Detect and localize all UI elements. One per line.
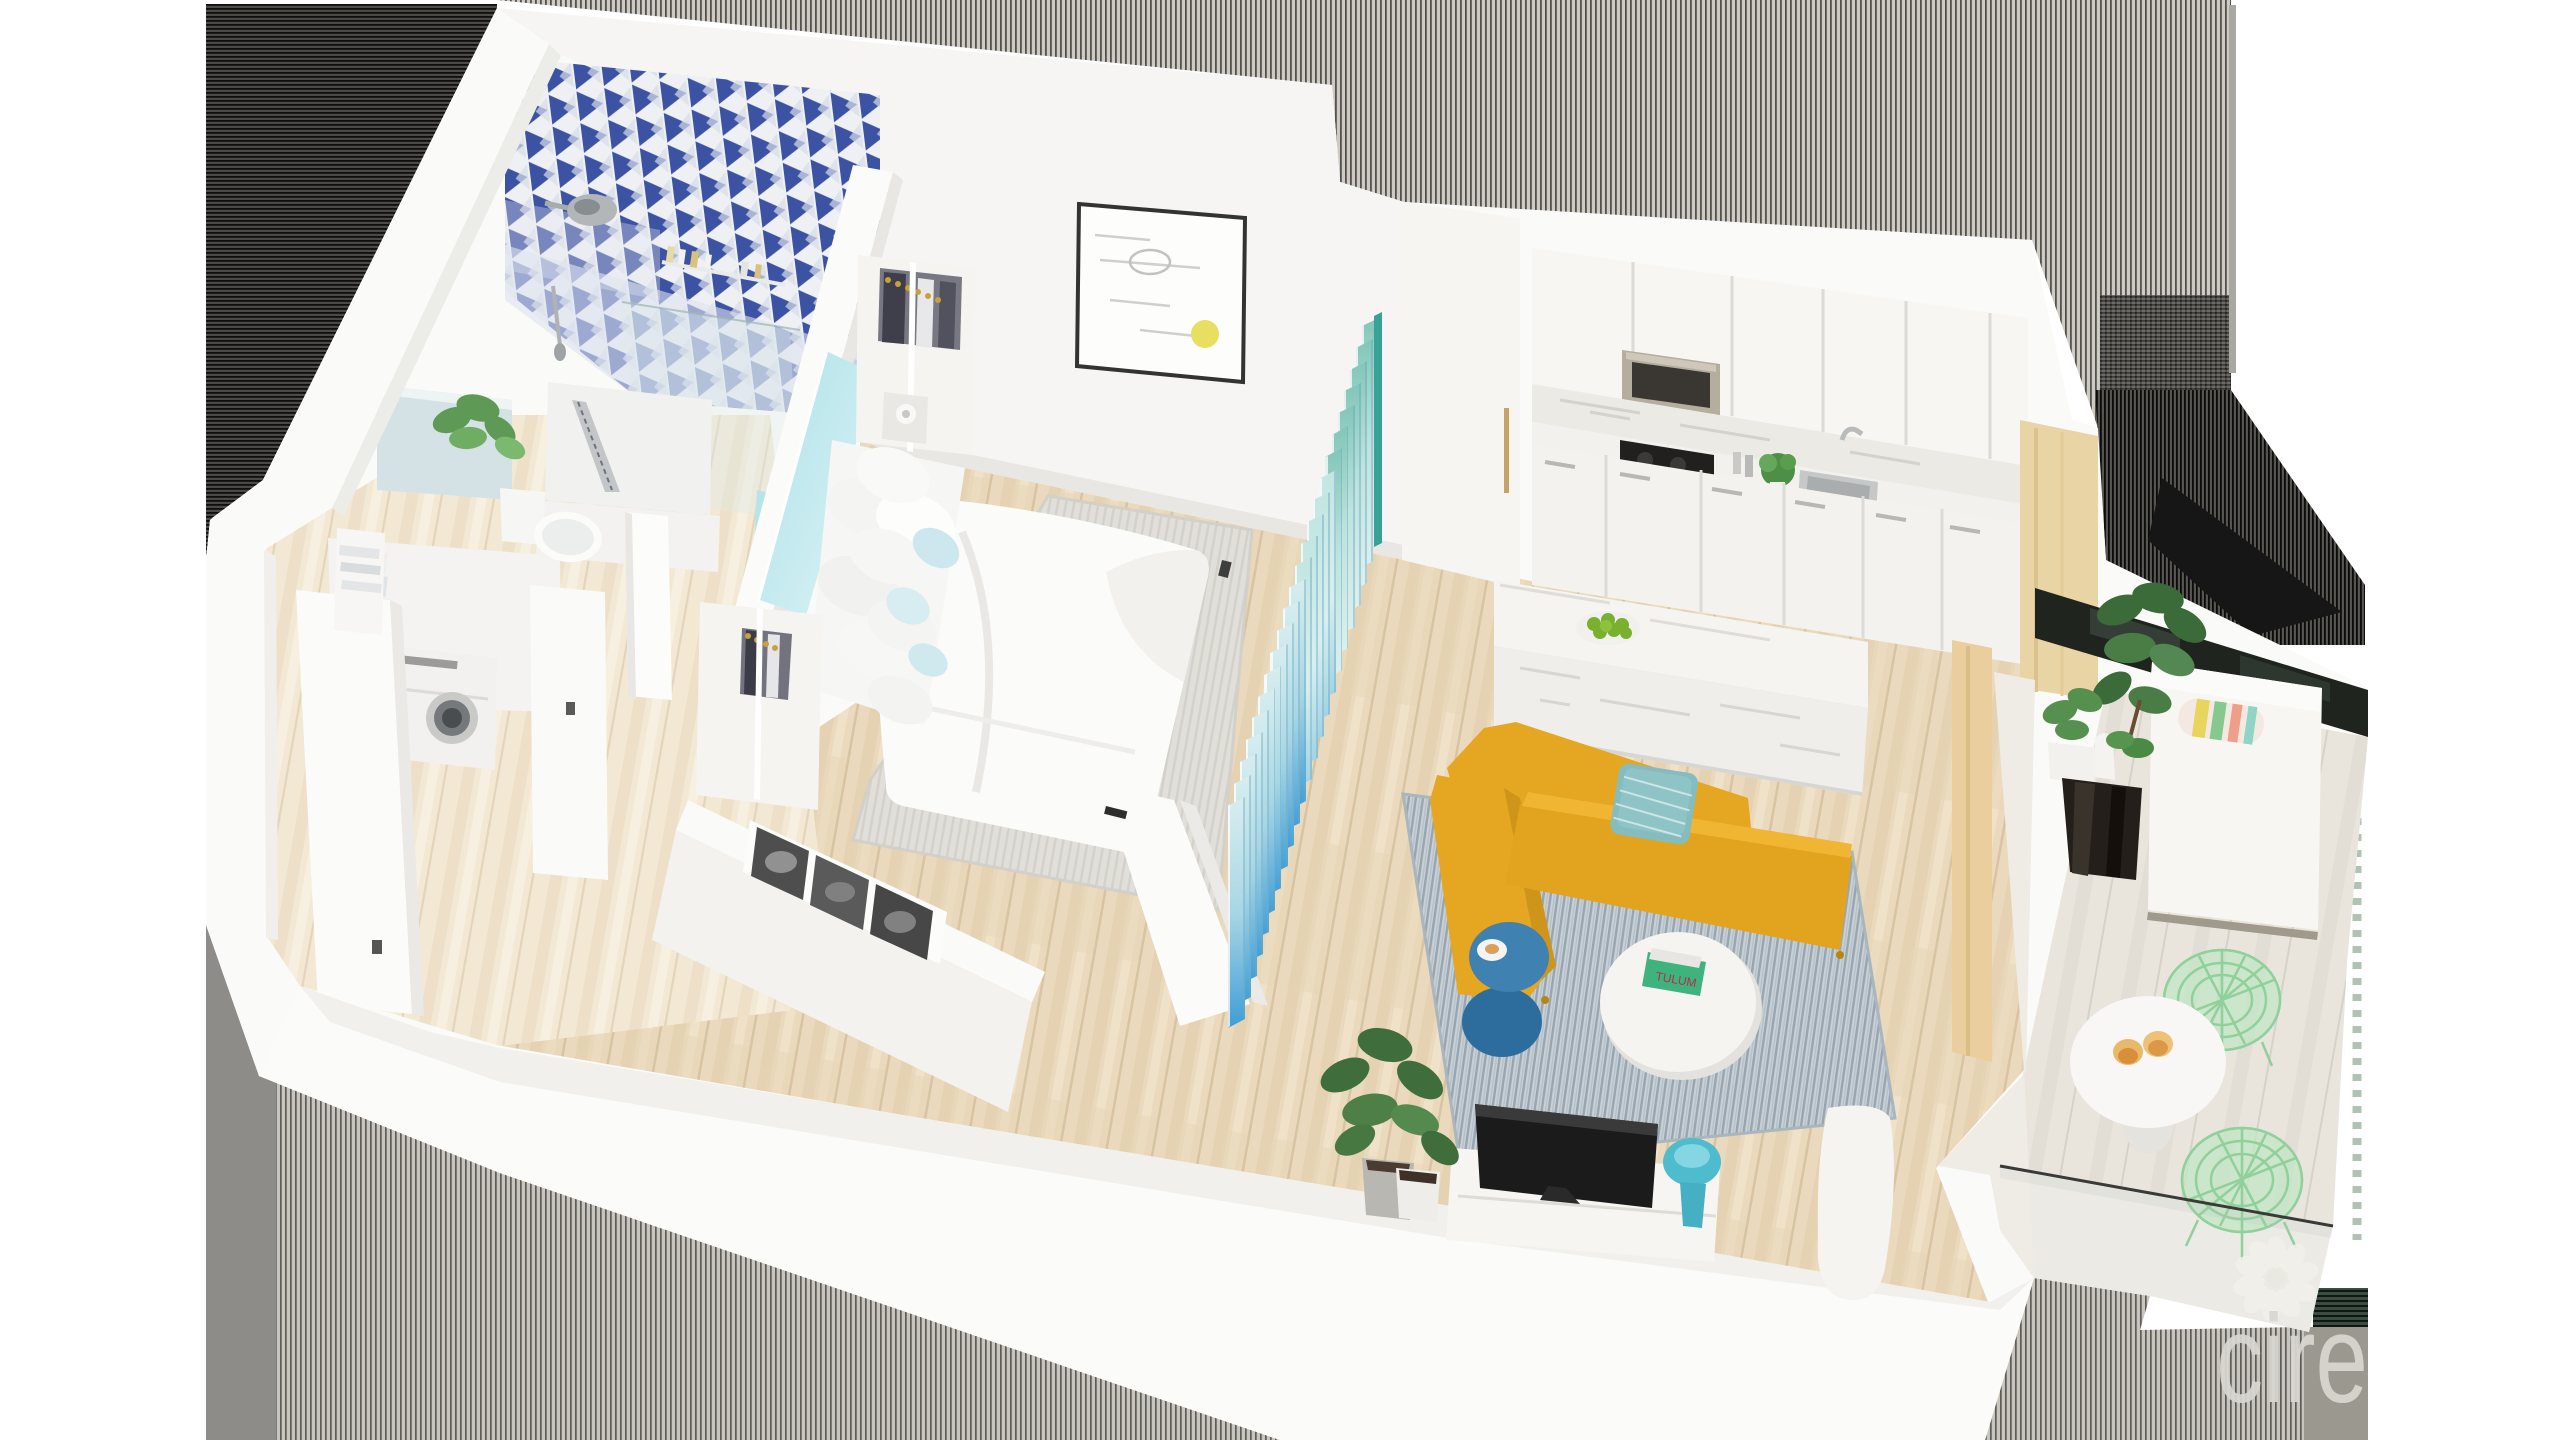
svg-text:cire: cire — [2216, 1290, 2368, 1429]
